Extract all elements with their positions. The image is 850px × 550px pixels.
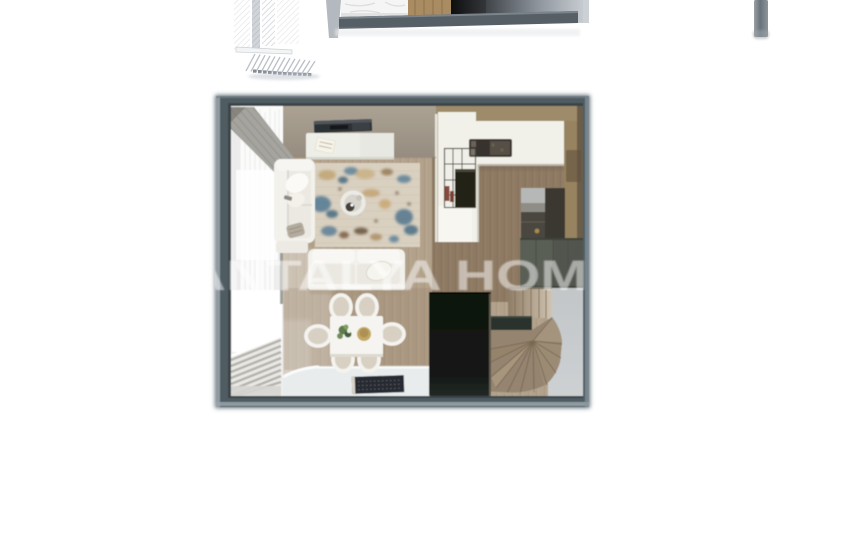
svg-text:ANTALYA HOM: ANTALYA HOM <box>185 252 588 299</box>
